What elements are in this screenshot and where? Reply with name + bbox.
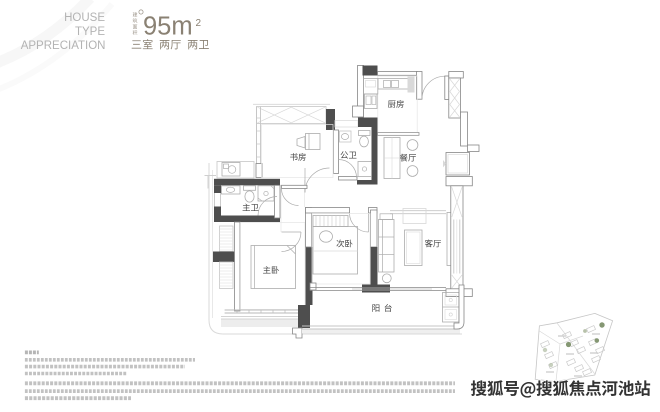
svg-text:APPRECIATION: APPRECIATION bbox=[21, 40, 106, 52]
svg-text:TYPE: TYPE bbox=[75, 26, 105, 38]
svg-text:HOUSE: HOUSE bbox=[64, 12, 105, 24]
svg-text:95m: 95m bbox=[143, 13, 193, 41]
svg-text:2: 2 bbox=[196, 18, 202, 29]
